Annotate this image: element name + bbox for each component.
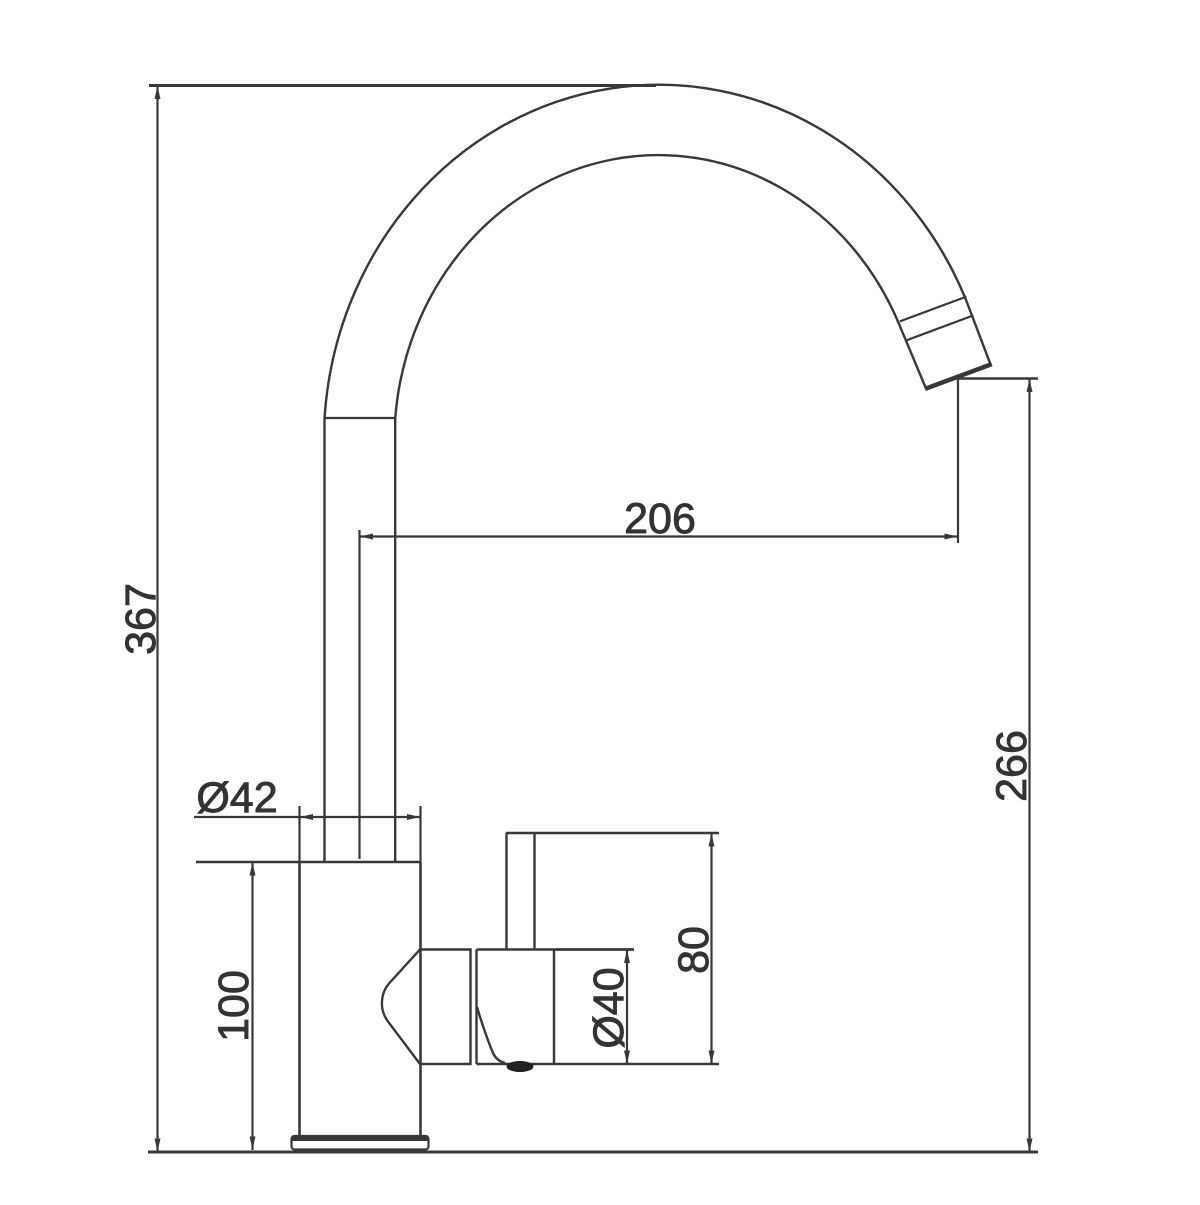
svg-text:100: 100 xyxy=(210,970,258,1042)
svg-text:266: 266 xyxy=(988,730,1036,802)
svg-text:Ø40: Ø40 xyxy=(585,967,633,1048)
svg-text:80: 80 xyxy=(670,926,718,974)
svg-text:Ø42: Ø42 xyxy=(196,774,277,822)
svg-text:206: 206 xyxy=(624,495,696,543)
svg-text:367: 367 xyxy=(117,583,165,655)
